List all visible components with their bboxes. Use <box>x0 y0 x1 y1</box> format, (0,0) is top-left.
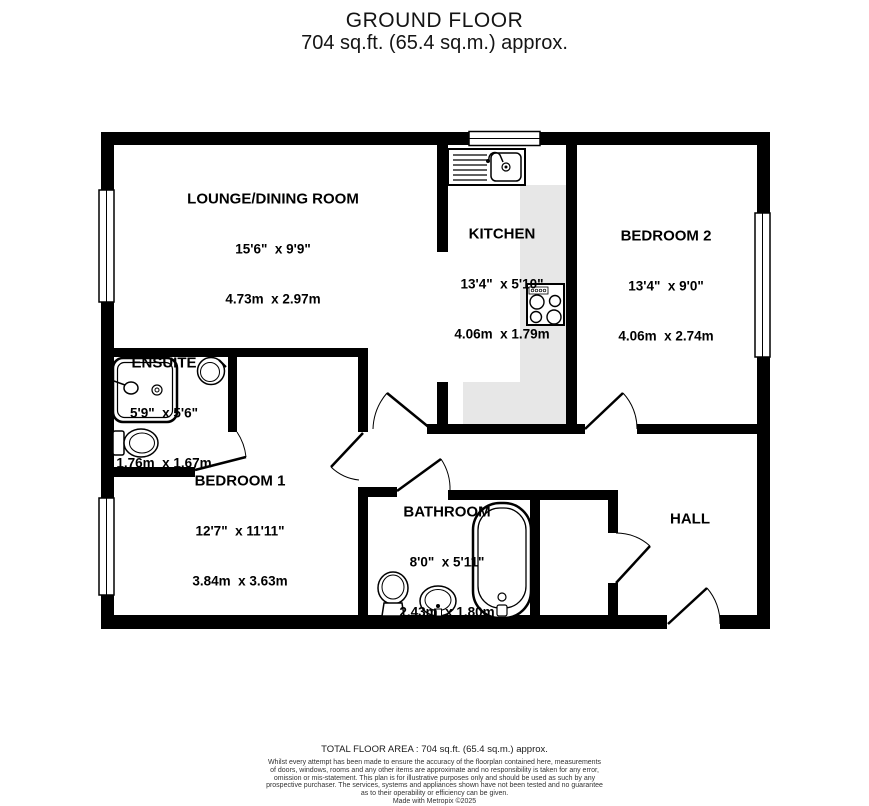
room-name: BATHROOM <box>399 505 494 520</box>
wall-segment <box>427 424 577 434</box>
front-door <box>668 588 720 624</box>
wall-segment <box>637 424 757 434</box>
bedroom1-window <box>99 498 114 595</box>
door-leaf <box>668 588 707 624</box>
wall-segment <box>358 348 368 432</box>
room-dims-imperial: 12'7" x 11'11" <box>192 525 287 539</box>
room-label-bedroom2: BEDROOM 2 13'4" x 9'0" 4.06m x 2.74m <box>618 193 713 380</box>
lounge-window <box>99 190 114 302</box>
room-label-lounge: LOUNGE/DINING ROOM 15'6" x 9'9" 4.73m x … <box>187 156 359 343</box>
room-name: KITCHEN <box>454 227 549 242</box>
room-label-bedroom1: BEDROOM 1 12'7" x 11'11" 3.84m x 3.63m <box>192 438 287 625</box>
floorplan-page: GROUND FLOOR 704 sq.ft. (65.4 sq.m.) app… <box>0 0 869 800</box>
total-floor-area: TOTAL FLOOR AREA : 704 sq.ft. (65.4 sq.m… <box>0 743 869 756</box>
room-dims-metric: 4.06m x 1.79m <box>454 328 549 342</box>
wall-segment <box>358 487 368 615</box>
plan-footer: TOTAL FLOOR AREA : 704 sq.ft. (65.4 sq.m… <box>0 743 869 806</box>
kitchen-sink <box>448 149 525 185</box>
room-name: BEDROOM 1 <box>192 474 287 489</box>
disclaimer-line: omission or mis-statement. This plan is … <box>0 775 869 783</box>
kitchen-floor-block <box>463 382 520 424</box>
wall-segment <box>566 145 577 434</box>
room-label-hall: HALL <box>670 476 710 563</box>
bedroom1-door <box>331 433 363 480</box>
disclaimer-line: Whilst every attempt has been made to en… <box>0 759 869 767</box>
room-dims-metric: 3.84m x 3.63m <box>192 575 287 589</box>
room-dims-imperial: 13'4" x 9'0" <box>618 280 713 294</box>
wall-segment <box>101 132 469 145</box>
bath-tap-icon <box>497 605 507 616</box>
wall-segment <box>540 132 770 145</box>
wall-segment <box>101 615 667 629</box>
room-dims-metric: 4.73m x 2.97m <box>187 293 359 307</box>
door-swing-arc <box>623 393 637 429</box>
door-swing-arc <box>707 588 720 624</box>
wall-segment <box>577 424 585 434</box>
wall-segment <box>101 595 114 617</box>
wall-segment <box>101 145 114 190</box>
door-swing-arc <box>373 393 387 429</box>
door-leaf <box>387 393 431 429</box>
wall-segment <box>437 145 448 252</box>
room-name: LOUNGE/DINING ROOM <box>187 192 359 207</box>
door-leaf <box>331 433 363 467</box>
wall-segment <box>437 382 448 424</box>
wall-segment <box>608 583 618 615</box>
bedroom2-window <box>755 213 770 357</box>
room-name: BEDROOM 2 <box>618 229 713 244</box>
wall-segment <box>757 357 770 615</box>
wall-segment <box>720 615 770 629</box>
room-dims-metric: 2.43m x 1.80m <box>399 606 494 620</box>
room-dims-imperial: 5'9" x 5'6" <box>116 407 211 421</box>
wall-segment <box>608 500 618 533</box>
room-dims-imperial: 15'6" x 9'9" <box>187 243 359 257</box>
cupboard-door <box>616 533 650 583</box>
kitchen-window <box>469 132 540 146</box>
room-name: ENSUITE <box>116 356 211 371</box>
disclaimer-line: prospective purchaser. The services, sys… <box>0 782 869 790</box>
disclaimer-line: as to their operability or efficiency ca… <box>0 790 869 798</box>
room-label-bathroom: BATHROOM 8'0" x 5'11" 2.43m x 1.80m <box>399 469 494 656</box>
credit-line: Made with Metropix ©2025 <box>0 798 869 806</box>
lounge-door <box>373 393 431 429</box>
wall-segment <box>757 145 770 213</box>
bedroom2-door <box>585 393 637 429</box>
room-dims-metric: 4.06m x 2.74m <box>618 330 713 344</box>
door-swing-arc <box>331 467 359 480</box>
disclaimer-text: Whilst every attempt has been made to en… <box>0 759 869 806</box>
door-leaf <box>616 546 650 583</box>
wall-segment <box>228 357 237 432</box>
door-leaf <box>585 393 623 429</box>
door-swing-arc <box>616 533 650 546</box>
room-dims-imperial: 13'4" x 5'10" <box>454 278 549 292</box>
room-label-kitchen: KITCHEN 13'4" x 5'10" 4.06m x 1.79m <box>454 191 549 378</box>
disclaimer-line: of doors, windows, rooms and any other i… <box>0 767 869 775</box>
room-dims-imperial: 8'0" x 5'11" <box>399 556 494 570</box>
room-name: HALL <box>670 512 710 527</box>
